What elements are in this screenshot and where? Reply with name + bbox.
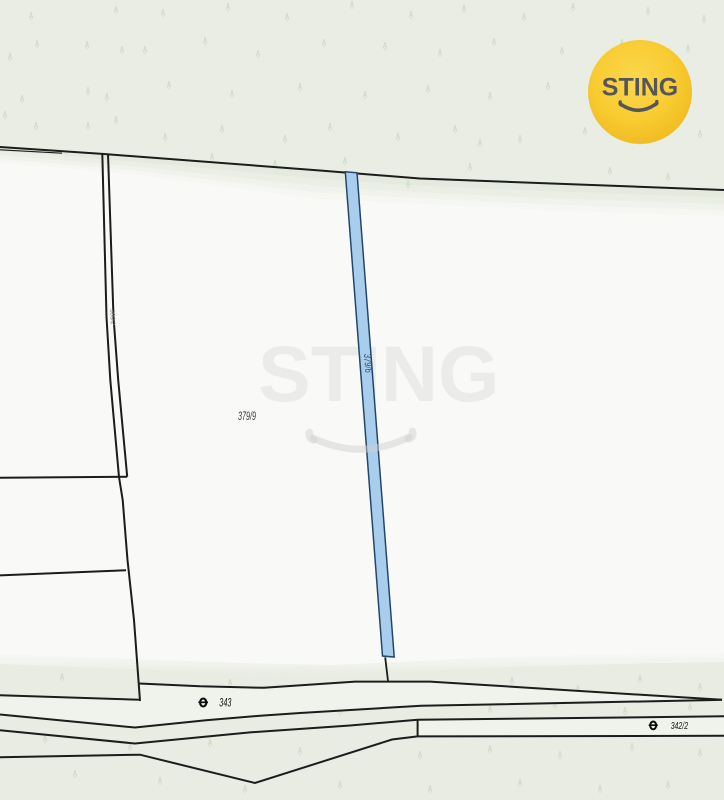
svg-text:342/2: 342/2	[671, 721, 689, 732]
svg-text:343: 343	[219, 698, 231, 710]
svg-text:379/9: 379/9	[238, 411, 256, 423]
svg-text:STING: STING	[258, 329, 499, 418]
svg-text:380/2: 380/2	[108, 309, 116, 326]
svg-text:379/6: 379/6	[361, 353, 374, 373]
svg-text:STING: STING	[602, 74, 678, 102]
